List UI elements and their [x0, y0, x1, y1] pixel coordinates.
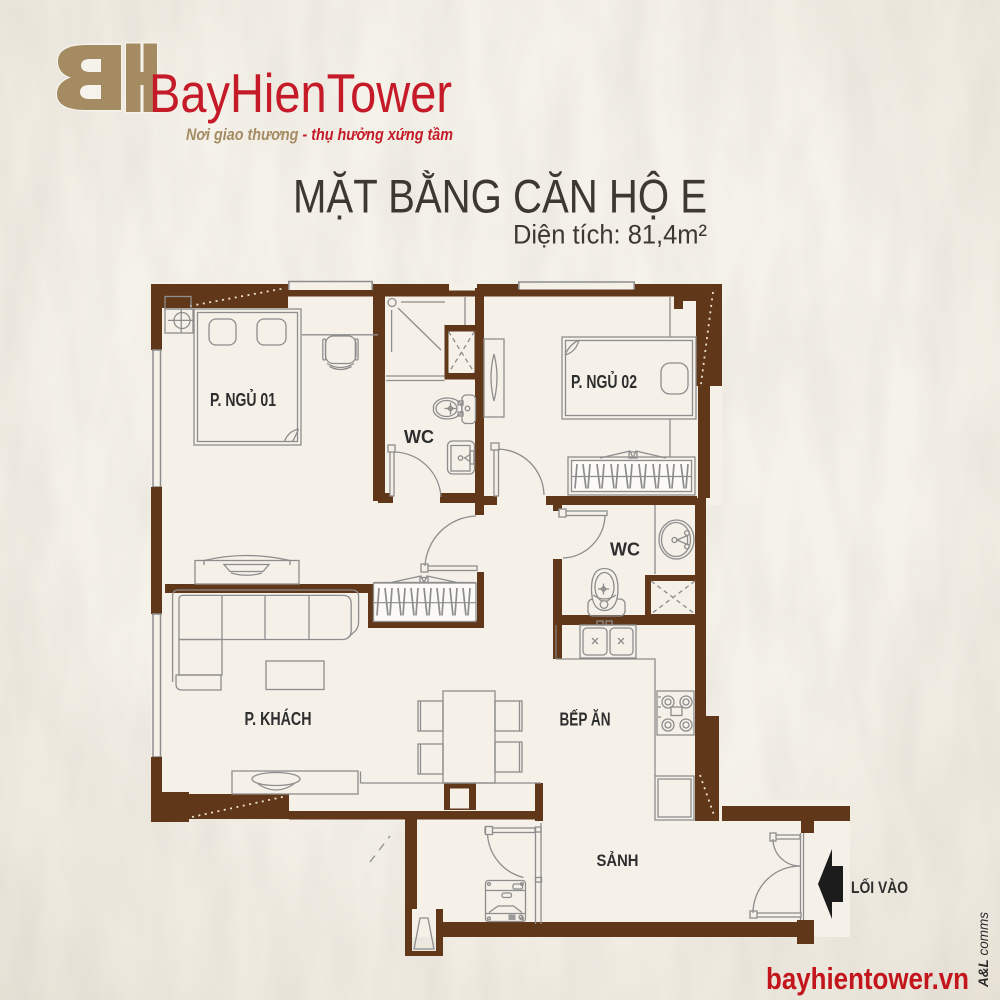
svg-text:A&L comms: A&L comms — [976, 912, 991, 988]
svg-text:WC: WC — [404, 427, 434, 447]
svg-text:P. NGỦ 02: P. NGỦ 02 — [571, 371, 637, 392]
svg-text:bayhientower.vn: bayhientower.vn — [766, 961, 969, 996]
svg-text:SẢNH: SẢNH — [597, 851, 639, 870]
svg-text:P. KHÁCH: P. KHÁCH — [245, 708, 312, 729]
svg-text:LỐI VÀO: LỐI VÀO — [851, 877, 908, 897]
svg-text:BayHienTower: BayHienTower — [149, 62, 452, 124]
svg-text:WC: WC — [610, 540, 640, 560]
svg-text:MẶT BẰNG CĂN HỘ E: MẶT BẰNG CĂN HỘ E — [293, 170, 707, 223]
svg-text:BẾP ĂN: BẾP ĂN — [560, 709, 611, 730]
svg-text:P. NGỦ 01: P. NGỦ 01 — [210, 389, 276, 410]
svg-text:Nơi giao thương - thụ hưởng xứ: Nơi giao thương - thụ hưởng xứng tầm — [186, 125, 453, 144]
svg-text:Diện tích: 81,4m²: Diện tích: 81,4m² — [513, 220, 707, 250]
